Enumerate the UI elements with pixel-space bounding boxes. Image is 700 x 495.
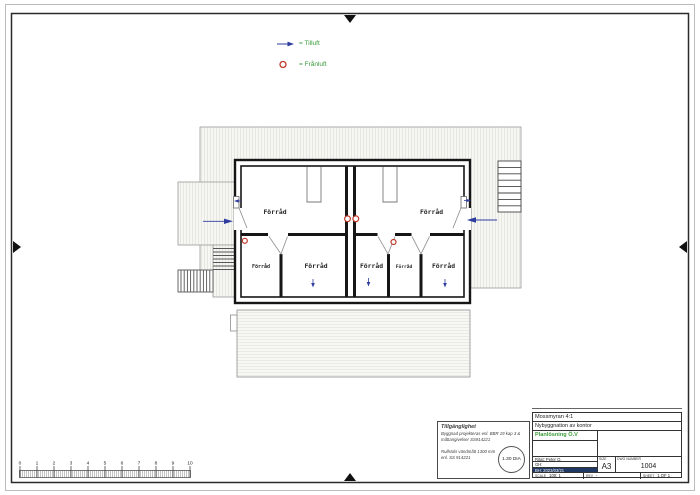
size-label: SIZE	[599, 457, 607, 461]
svg-text:8: 8	[155, 461, 158, 467]
exhaust-vent-bottom-left	[242, 238, 247, 243]
centering-mark-top	[344, 15, 356, 23]
supply-arrow-icon	[277, 40, 294, 48]
drawing-title: Planlösning Ö.V	[533, 431, 597, 441]
legend-row-franluft: = Frånluft	[277, 60, 327, 69]
rev-label: REV	[586, 474, 593, 478]
svg-text:4: 4	[87, 461, 90, 467]
size-cell: SIZE A3	[598, 457, 616, 472]
turning-circle-label: 1.30 DIA	[502, 457, 521, 462]
exhaust-circle-icon	[277, 60, 294, 69]
title-block: Mossmyran 4:1 Nybyggnation av kontor Pla…	[532, 412, 682, 478]
centering-mark-left	[13, 241, 21, 253]
size-value: A3	[598, 462, 615, 471]
approved-date: BH: 2023/03/21	[533, 468, 597, 472]
svg-text:0: 0	[19, 461, 22, 467]
scale-label: SCALE	[535, 474, 546, 478]
room-label: Förråd	[263, 207, 286, 216]
room-label: Förråd	[396, 263, 413, 270]
centering-mark-bottom	[344, 473, 356, 481]
svg-text:6: 6	[121, 461, 124, 467]
sheet-label: SHEET	[643, 474, 654, 478]
scale-value: 100: 1	[549, 473, 561, 478]
room-label: Förråd	[420, 207, 443, 216]
room-label: Förråd	[252, 263, 270, 270]
legend-tilluft-label: = Tilluft	[299, 39, 320, 48]
svg-text:10: 10	[187, 461, 193, 467]
project-description: Nybyggnation av kontor	[533, 422, 681, 431]
dwg-value: 1004	[616, 463, 681, 471]
title-block-empty-cell	[598, 431, 681, 456]
rev-cell: REV-	[584, 473, 641, 479]
drawing-sheet: Förråd Förråd Förråd Förråd Förråd Förrå…	[0, 0, 700, 495]
exhaust-vent-bottom-mid	[391, 240, 396, 245]
room-label: Förråd	[304, 261, 327, 270]
sheet-cell: SHEET1 OF 1	[641, 473, 681, 479]
room-label: Förråd	[360, 261, 383, 270]
centering-mark-right	[679, 241, 687, 253]
svg-text:3: 3	[70, 461, 73, 467]
svg-text:1: 1	[36, 461, 39, 467]
sheet-value: 1 OF 1	[657, 473, 670, 478]
building-walls	[234, 160, 471, 303]
exhaust-vent-center-left	[345, 216, 351, 222]
room-label: Förråd	[432, 261, 455, 270]
dwg-label: DWG NUMBER	[617, 457, 641, 461]
svg-text:2: 2	[53, 461, 56, 467]
scale-cell: SCALE100: 1	[533, 473, 584, 479]
svg-text:9: 9	[172, 461, 175, 467]
legend-row-tilluft: = Tilluft	[277, 39, 327, 48]
dwg-number-cell: DWG NUMBER 1004	[616, 457, 681, 472]
rev-value: -	[596, 473, 597, 478]
accessibility-note: Tillgänglighet Byggnad projekteras enl. …	[437, 421, 530, 479]
note-title: Tillgänglighet	[441, 424, 526, 431]
project-name: Mossmyran 4:1	[533, 413, 681, 422]
legend-franluft-label: = Frånluft	[299, 60, 327, 69]
scale-ruler: 0 1 2 3 4 5 6 7 8 9 10	[19, 461, 193, 478]
svg-text:5: 5	[104, 461, 107, 467]
ruler-numbers: 0 1 2 3 4 5 6 7 8 9 10	[19, 461, 193, 467]
svg-text:7: 7	[138, 461, 141, 467]
note-line: Byggnad projekteras enl. BBR 19 kap 3 &	[441, 431, 526, 437]
turning-circle-symbol: 1.30 DIA	[498, 446, 525, 473]
exhaust-vent-center-right	[353, 216, 359, 222]
right-stairs	[498, 161, 521, 212]
legend: = Tilluft = Frånluft	[277, 39, 327, 81]
bottom-terrace	[231, 310, 471, 377]
